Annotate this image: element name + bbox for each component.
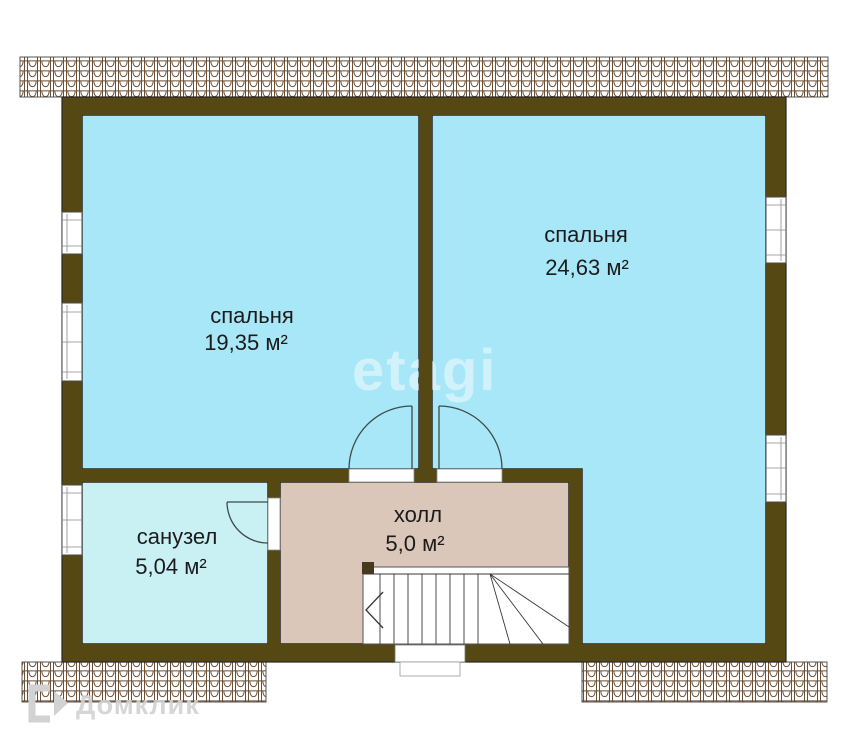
- wall-hall-right: [569, 469, 582, 644]
- window-left-2: [62, 303, 82, 381]
- window-left-1: [62, 212, 82, 254]
- bedroom-left-room: [82, 115, 419, 469]
- wall-horizontal: [78, 469, 582, 482]
- watermark-domclick-text: Домклик: [76, 690, 200, 720]
- floor-plan-drawing: etagi: [0, 0, 845, 745]
- stair-newel-post: [362, 562, 374, 574]
- wall-bathroom-right: [268, 469, 280, 644]
- roof-strip-bottom-right: [582, 662, 827, 702]
- bathroom-name: санузел: [137, 526, 218, 548]
- roof-strip-top: [20, 57, 828, 97]
- bedroom-right-name: спальня: [544, 224, 628, 246]
- bedroom-left-name: спальня: [210, 305, 294, 327]
- hall-area: 5,0 м²: [385, 533, 444, 555]
- hall-name: холл: [394, 504, 442, 526]
- window-left-3: [62, 485, 82, 555]
- floor-plan-canvas: etagi: [0, 0, 845, 745]
- bathroom-area: 5,04 м²: [135, 556, 206, 578]
- stair-lower-landing: [400, 662, 460, 676]
- window-right-1: [766, 197, 786, 263]
- bedroom-left-area: 19,35 м²: [204, 332, 288, 354]
- bedroom-right-area: 24,63 м²: [545, 257, 629, 279]
- stair-wall-opening: [395, 645, 465, 662]
- wall-right: [766, 97, 786, 662]
- window-right-2: [766, 435, 786, 502]
- wall-center-vertical: [419, 97, 432, 482]
